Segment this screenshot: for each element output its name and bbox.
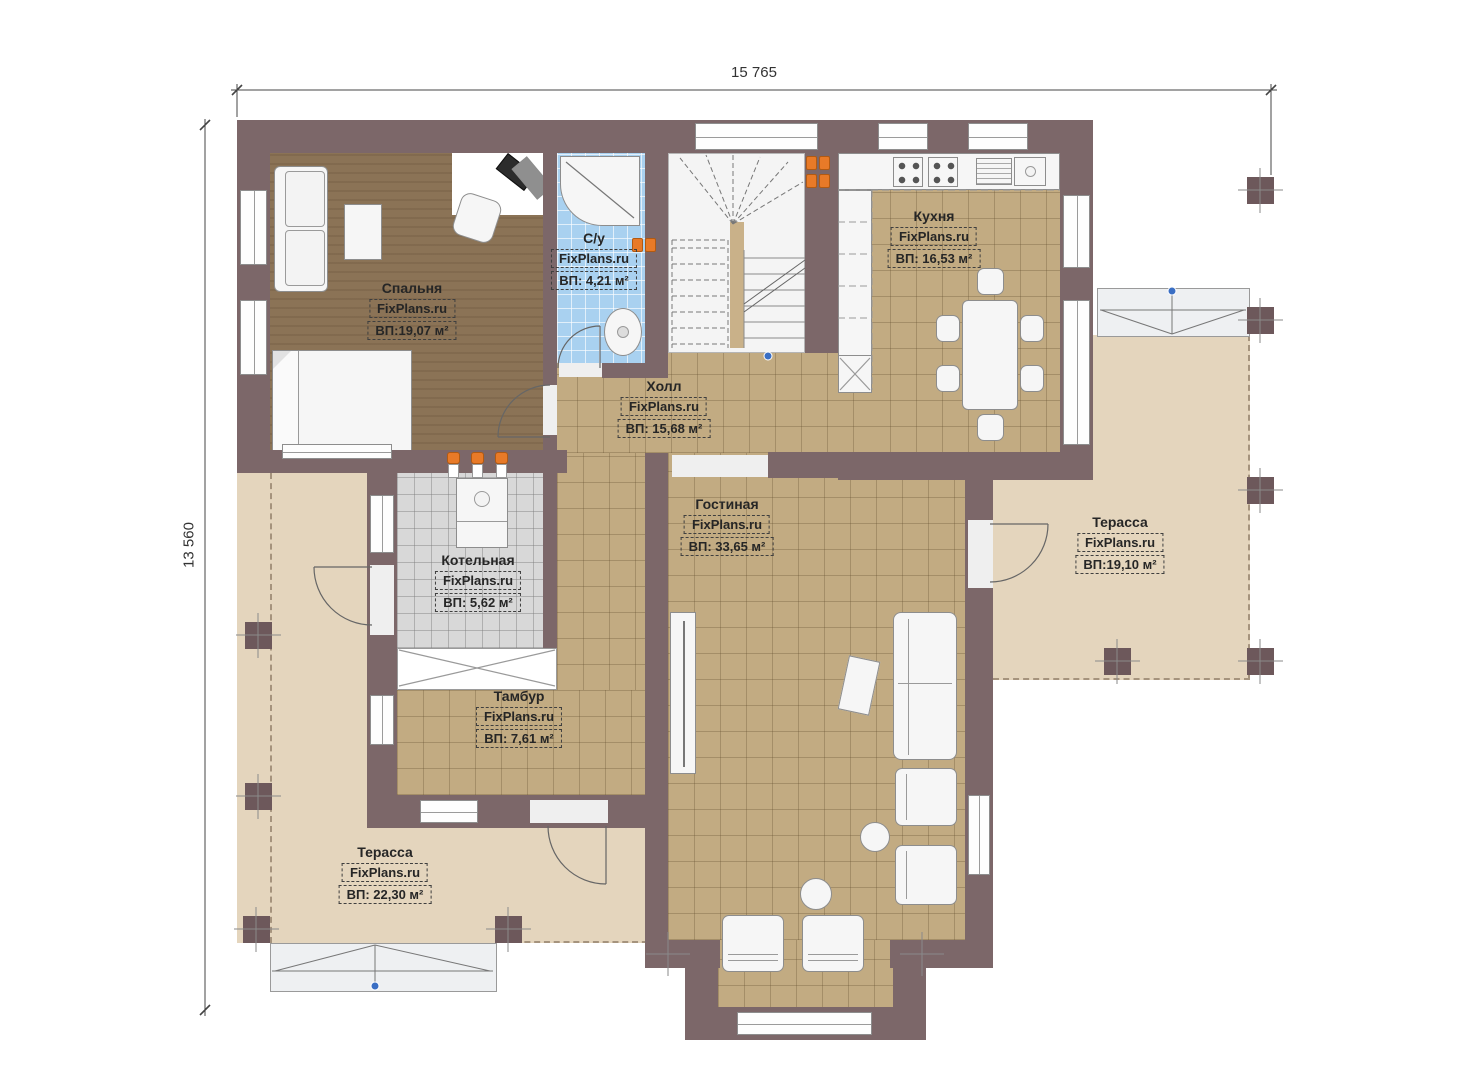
opening-hall-living — [672, 455, 768, 477]
room-area: ВП: 16,53 м² — [888, 249, 981, 268]
window-bedroom-south — [282, 444, 392, 459]
dining-chair — [936, 365, 960, 392]
kitchen-sink — [1014, 157, 1046, 186]
window-kitchen-north-2 — [968, 123, 1028, 150]
wardrobe-closet — [397, 648, 557, 690]
sink-drainboard — [976, 158, 1012, 185]
window-living-east — [968, 795, 990, 875]
watermark-label: FixPlans.ru — [551, 249, 637, 268]
wall-bathroom-stairs — [645, 153, 668, 378]
radiator-icon — [806, 156, 830, 170]
dining-chair — [1020, 315, 1044, 342]
boiler-pipe-icon — [471, 452, 484, 478]
column — [243, 916, 270, 943]
watermark-label: FixPlans.ru — [621, 397, 707, 416]
room-label-terrace-right: Терасса FixPlans.ru ВП:19,10 м² — [1075, 514, 1164, 574]
room-area: ВП: 4,21 м² — [551, 271, 637, 290]
armchair — [895, 768, 957, 826]
door-opening-terrace-left — [370, 565, 394, 635]
radiator-icon — [806, 174, 830, 188]
side-table-round — [860, 822, 890, 852]
room-name: Холл — [646, 378, 681, 394]
window-stairs-north — [695, 123, 818, 150]
bedroom-sofa — [274, 166, 328, 292]
room-area: ВП:19,07 м² — [367, 321, 456, 340]
terrace-right-steps — [1097, 288, 1250, 337]
room-name: Тамбур — [494, 688, 545, 704]
terrace-bottom-steps — [270, 943, 497, 992]
wall-living-west — [645, 453, 668, 940]
room-name: Терасса — [1092, 514, 1148, 530]
room-area: ВП:19,10 м² — [1075, 555, 1164, 574]
stove-burners-1 — [893, 157, 923, 187]
window-kitchen-east-1 — [1063, 195, 1090, 268]
door-opening-bedroom — [543, 385, 557, 435]
room-area: ВП: 22,30 м² — [339, 885, 432, 904]
watermark-label: FixPlans.ru — [1077, 533, 1163, 552]
wall-hall-living — [768, 452, 838, 478]
dining-chair — [977, 414, 1004, 441]
floor-plan-canvas: Спальня FixPlans.ru ВП:19,07 м² С/у FixP… — [0, 0, 1474, 1080]
armchair-bay — [722, 915, 784, 972]
room-area: ВП: 15,68 м² — [618, 419, 711, 438]
watermark-label: FixPlans.ru — [476, 707, 562, 726]
column — [495, 916, 522, 943]
bathroom-sink — [604, 308, 642, 356]
terrace-right-floor-upper — [1093, 335, 1250, 480]
dimension-width: 15 765 — [726, 64, 782, 81]
wall-bathroom-south — [602, 363, 645, 378]
dining-chair — [936, 315, 960, 342]
window-living-bay — [737, 1012, 872, 1035]
stove-burners-2 — [928, 157, 958, 187]
room-name: Кухня — [914, 208, 955, 224]
terrace-right-east-boundary — [1248, 335, 1250, 680]
stairs-spine-wall — [730, 222, 744, 348]
column — [1104, 648, 1131, 675]
room-label-terrace-bottom: Терасса FixPlans.ru ВП: 22,30 м² — [339, 844, 432, 904]
boiler-pipe-icon — [447, 452, 460, 478]
window-kitchen-east-2 — [1063, 300, 1090, 445]
column — [1247, 648, 1274, 675]
room-area: ВП: 33,65 м² — [681, 537, 774, 556]
door-opening-entrance — [530, 800, 608, 823]
column — [1247, 177, 1274, 204]
room-label-living: Гостиная FixPlans.ru ВП: 33,65 м² — [681, 496, 774, 556]
window-bedroom-west-2 — [240, 300, 267, 375]
window-bedroom-west-1 — [240, 190, 267, 265]
side-table-round — [800, 878, 832, 910]
room-name: С/у — [583, 230, 605, 246]
armchair — [895, 845, 957, 905]
dimension-height: 13 560 — [181, 517, 198, 573]
watermark-label: FixPlans.ru — [684, 515, 770, 534]
terrace-right-south-boundary — [993, 678, 1250, 680]
column — [1247, 307, 1274, 334]
dining-chair — [977, 268, 1004, 295]
room-area: ВП: 5,62 м² — [435, 593, 521, 612]
armchair-bay — [802, 915, 864, 972]
window-boiler-west — [370, 495, 394, 553]
room-area: ВП: 7,61 м² — [476, 729, 562, 748]
window-kitchen-north-1 — [878, 123, 928, 150]
room-name: Спальня — [382, 280, 442, 296]
wall-north — [237, 120, 1093, 153]
watermark-label: FixPlans.ru — [891, 227, 977, 246]
door-opening-terrace-right — [968, 520, 993, 588]
room-name: Котельная — [441, 552, 514, 568]
window-vestibule-south — [420, 800, 478, 823]
room-label-boiler: Котельная FixPlans.ru ВП: 5,62 м² — [435, 552, 521, 612]
column — [245, 622, 272, 649]
boiler-unit — [456, 478, 508, 548]
dining-table — [962, 300, 1018, 410]
room-name: Терасса — [357, 844, 413, 860]
bedroom-side-table — [344, 204, 382, 260]
watermark-label: FixPlans.ru — [369, 299, 455, 318]
door-opening-bathroom — [559, 363, 602, 377]
column — [1247, 477, 1274, 504]
room-name: Гостиная — [695, 496, 758, 512]
bedroom-bed — [272, 350, 412, 452]
room-label-kitchen: Кухня FixPlans.ru ВП: 16,53 м² — [888, 208, 981, 268]
watermark-label: FixPlans.ru — [342, 863, 428, 882]
room-label-vestibule: Тамбур FixPlans.ru ВП: 7,61 м² — [476, 688, 562, 748]
room-label-hall: Холл FixPlans.ru ВП: 15,68 м² — [618, 378, 711, 438]
wall-west-upper — [237, 120, 270, 473]
room-label-bathroom: С/у FixPlans.ru ВП: 4,21 м² — [551, 230, 637, 290]
terrace-bottom-left-boundary — [270, 473, 272, 943]
wall-boiler-east — [543, 473, 557, 648]
living-sofa — [893, 612, 957, 760]
kitchen-base-cabinet — [838, 355, 872, 393]
column — [245, 783, 272, 810]
tv-stand — [670, 612, 696, 774]
dining-chair — [1020, 365, 1044, 392]
terrace-bottom-floor-2 — [237, 828, 685, 943]
window-vestibule-west — [370, 695, 394, 745]
room-label-bedroom: Спальня FixPlans.ru ВП:19,07 м² — [367, 280, 456, 340]
boiler-pipe-icon — [495, 452, 508, 478]
watermark-label: FixPlans.ru — [435, 571, 521, 590]
